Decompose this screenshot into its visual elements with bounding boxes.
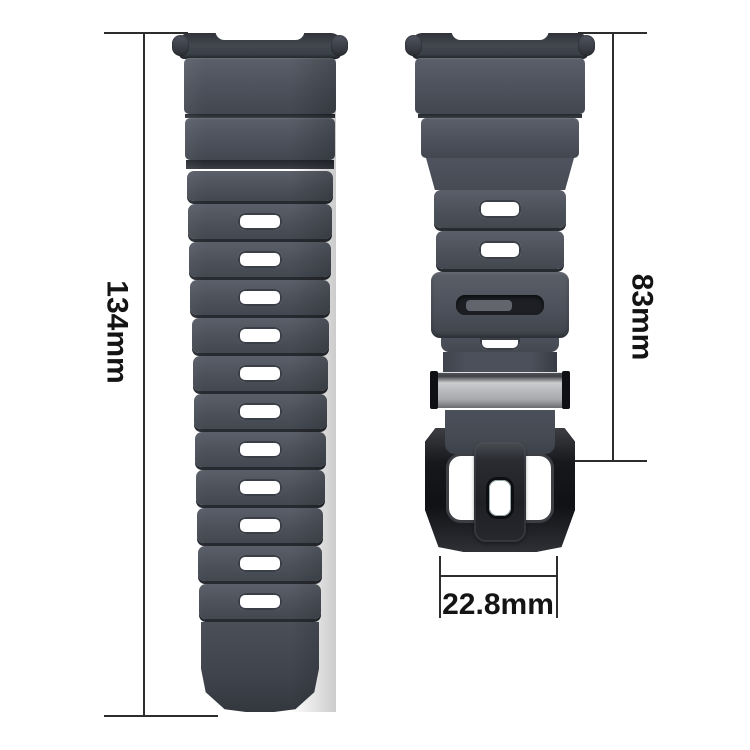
left-dimension-text: 134mm (100, 280, 134, 383)
strap-segment (434, 190, 566, 228)
strap-segment (196, 470, 325, 505)
lug-ear-right (331, 35, 348, 56)
metal-slider-keeper (432, 372, 568, 408)
lug-ear-left (405, 35, 422, 56)
left-strap-groove (186, 160, 334, 169)
strap-hole (479, 200, 521, 218)
buckle-width-line (439, 575, 558, 577)
right-strap-taper (426, 158, 574, 190)
strap-segment (188, 204, 332, 239)
right-strap (415, 58, 585, 552)
strap-hole (238, 593, 282, 610)
lug-notch (215, 31, 304, 40)
strap-segment (436, 231, 564, 269)
strap-hole (480, 338, 520, 350)
strap-segment (193, 356, 328, 391)
strap-hole (238, 517, 282, 534)
strap-segment (189, 242, 331, 277)
left-strap (184, 58, 336, 712)
strap-segment (194, 394, 327, 429)
strap-hole (238, 289, 282, 306)
strap-hole (238, 403, 282, 420)
tongue-slot (489, 480, 511, 516)
right-strap-band (421, 118, 579, 158)
product-diagram: 134mm 83mm 22.8mm (0, 0, 750, 750)
strap-hole (479, 241, 521, 259)
left-dimension-tick-bottom (104, 715, 218, 717)
keeper-slot-highlight (466, 300, 512, 311)
strap-segment (190, 280, 330, 315)
strap-segment (199, 584, 321, 619)
left-strap-plain-segment (187, 171, 333, 201)
left-dimension-tick-top (104, 32, 188, 34)
strap-hole (238, 479, 282, 496)
right-dimension-tick-top (578, 32, 647, 34)
buckle-width-label: 22.8mm (436, 588, 560, 622)
right-strap-neck (443, 352, 557, 372)
rubber-keeper-loop (431, 272, 569, 338)
strap-hole (238, 555, 282, 572)
slider-end-cap (562, 371, 570, 409)
left-dimension-label: 134mm (62, 277, 172, 387)
strap-segment (192, 318, 329, 353)
keeper-slot (456, 295, 544, 315)
right-strap-lug-connector (412, 33, 588, 59)
strap-hole (238, 365, 282, 382)
right-dimension-label: 83mm (586, 262, 696, 372)
slider-end-cap (430, 371, 438, 409)
lug-notch (452, 31, 549, 40)
left-strap-end-cap (201, 622, 319, 712)
lug-ear-left (172, 35, 189, 56)
right-dimension-text: 83mm (624, 274, 658, 361)
right-strap-segments (415, 190, 585, 272)
buckle-tongue (474, 442, 526, 542)
right-dimension-line (612, 33, 614, 462)
strap-hole (238, 251, 282, 268)
left-strap-band (184, 58, 336, 114)
left-strap-band (185, 118, 335, 160)
strap-segment (197, 508, 323, 543)
strap-hole (238, 213, 282, 230)
strap-hole (238, 441, 282, 458)
left-strap-segments (184, 204, 336, 622)
strap-segment (195, 432, 326, 467)
left-strap-lug-connector (179, 33, 341, 59)
strap-hole (238, 327, 282, 344)
strap-segment (198, 546, 322, 581)
right-strap-band (415, 58, 585, 114)
lug-ear-right (578, 35, 595, 56)
right-strap-partial-segment (441, 338, 559, 352)
